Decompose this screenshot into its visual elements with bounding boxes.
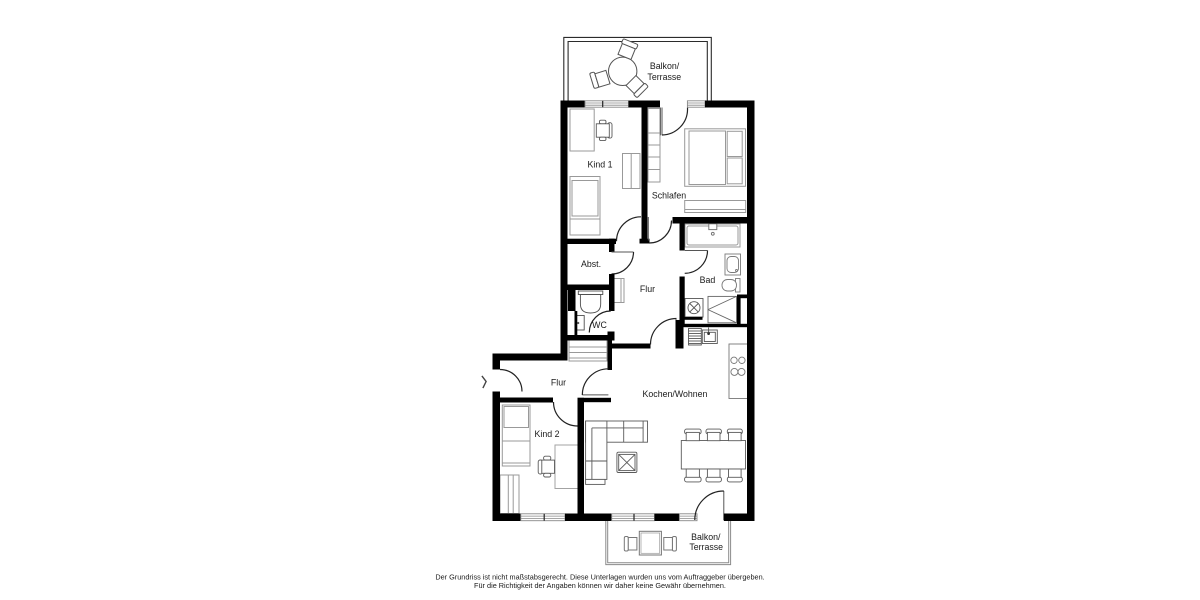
svg-text:WC: WC bbox=[592, 320, 607, 330]
svg-text:Flur: Flur bbox=[551, 378, 566, 388]
svg-text:Kind 1: Kind 1 bbox=[588, 160, 613, 170]
svg-text:Balkon/: Balkon/ bbox=[650, 61, 680, 71]
svg-text:Für die Richtigkeit der Angabe: Für die Richtigkeit der Angaben können w… bbox=[474, 581, 726, 590]
svg-text:Terrasse: Terrasse bbox=[689, 542, 723, 552]
svg-text:Kind 2: Kind 2 bbox=[535, 429, 560, 439]
svg-text:Bad: Bad bbox=[700, 275, 716, 285]
svg-text:Flur: Flur bbox=[640, 284, 655, 294]
svg-text:Kochen/Wohnen: Kochen/Wohnen bbox=[643, 389, 708, 399]
svg-text:Balkon/: Balkon/ bbox=[691, 532, 721, 542]
svg-text:Terrasse: Terrasse bbox=[647, 72, 681, 82]
svg-text:Abst.: Abst. bbox=[581, 259, 601, 269]
svg-text:Schlafen: Schlafen bbox=[652, 191, 686, 201]
